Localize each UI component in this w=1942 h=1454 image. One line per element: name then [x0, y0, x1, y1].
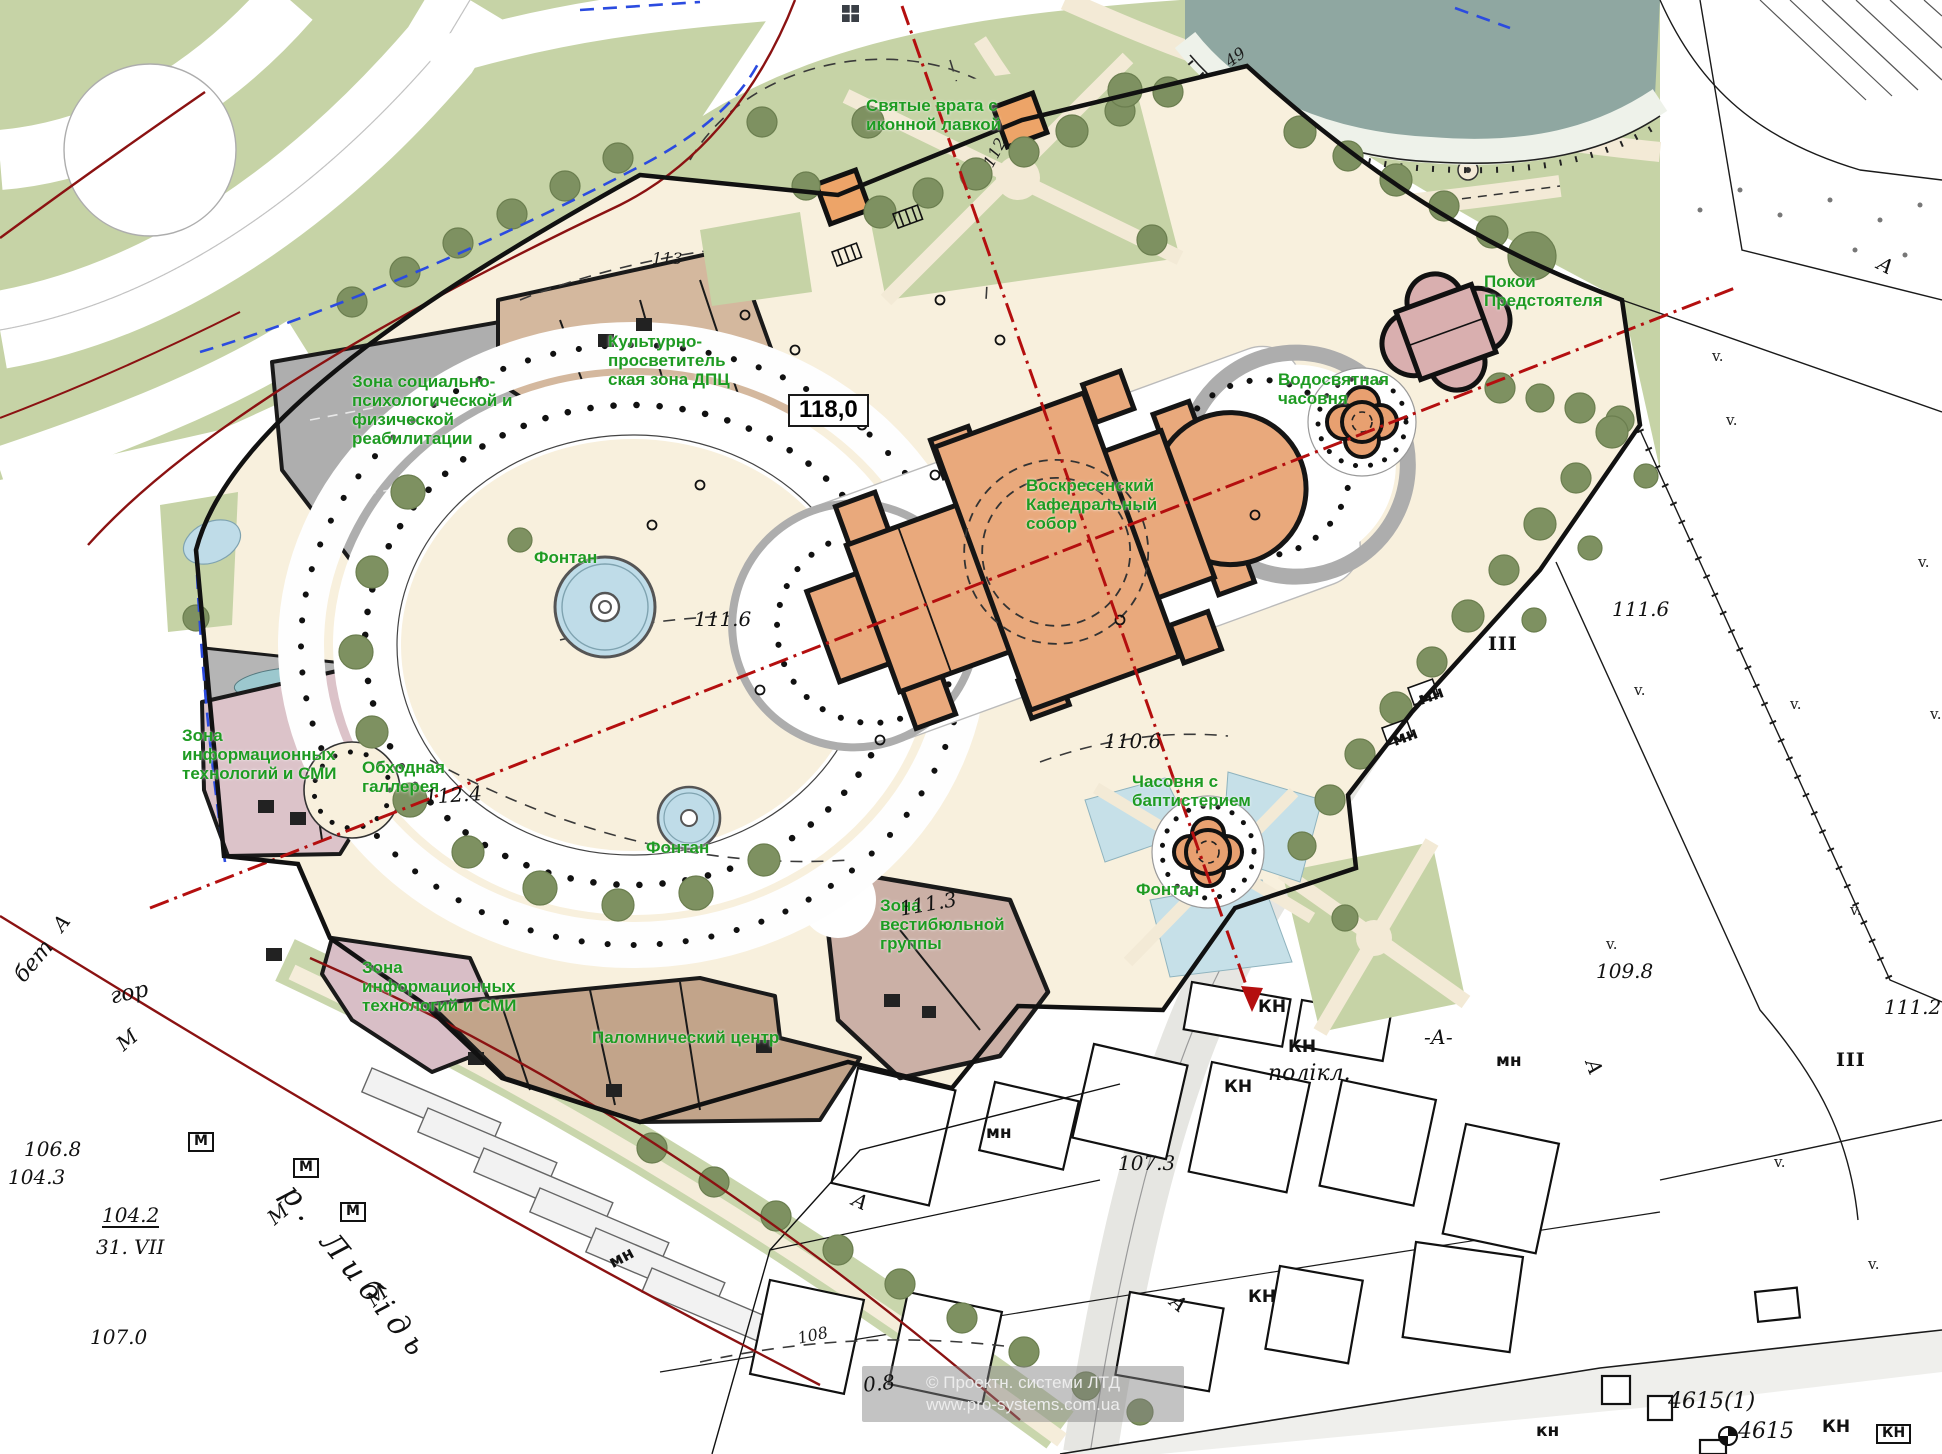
- baptistery-chapel: [1152, 796, 1264, 908]
- watermark-line1: © Проектн. системи ЛТД: [926, 1372, 1120, 1394]
- site-plan-drawing: [0, 0, 1942, 1454]
- survey-point-symbol: [1719, 1427, 1737, 1445]
- fountain-2: [658, 787, 720, 849]
- corner-map-icon: [842, 5, 859, 22]
- watermark: © Проектн. системи ЛТД www.pro-systems.c…: [862, 1366, 1184, 1422]
- water-chapel: [1308, 368, 1416, 476]
- gallery-circle: [304, 742, 400, 838]
- watermark-line2: www.pro-systems.com.ua: [926, 1394, 1120, 1416]
- fountain-1: [555, 557, 655, 657]
